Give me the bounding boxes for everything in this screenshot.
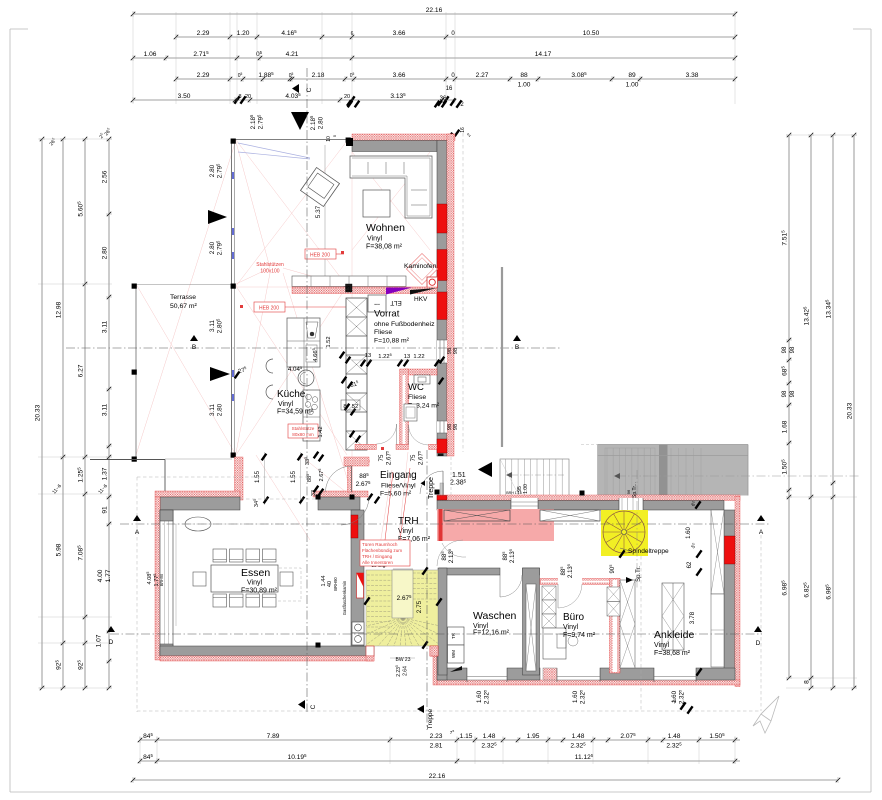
svg-text:A: A (759, 529, 764, 536)
svg-text:4.00: 4.00 (97, 569, 104, 582)
svg-text:4.21: 4.21 (286, 51, 299, 58)
svg-text:Waschen: Waschen (473, 610, 517, 622)
svg-text:5.98: 5.98 (56, 543, 63, 556)
svg-text:Kaminofen: Kaminofen (404, 263, 437, 270)
svg-text:Eingang: Eingang (380, 470, 417, 481)
svg-text:13: 13 (346, 286, 352, 292)
svg-text:2.64: 2.64 (403, 666, 409, 676)
svg-text:91: 91 (102, 506, 109, 514)
svg-text:Ankleide: Ankleide (654, 629, 694, 641)
svg-text:100x100: 100x100 (260, 269, 279, 275)
svg-text:1.15: 1.15 (460, 733, 473, 740)
svg-text:Türen Raumhoch: Türen Raumhoch (362, 542, 398, 547)
svg-text:7.89: 7.89 (267, 733, 280, 740)
svg-text:Spindeltreppe: Spindeltreppe (628, 548, 669, 555)
svg-text:2.23: 2.23 (430, 733, 443, 740)
svg-text:Fliese: Fliese (374, 329, 392, 336)
svg-text:1.52: 1.52 (326, 336, 332, 347)
svg-text:98: 98 (782, 346, 788, 353)
svg-text:Vinyl: Vinyl (367, 236, 382, 243)
svg-text:Fliese: Fliese (408, 394, 426, 401)
svg-text:2.75: 2.75 (416, 600, 423, 613)
svg-text:Stahlstütze: Stahlstütze (292, 426, 315, 431)
svg-text:B: B (515, 344, 519, 351)
svg-text:10.50: 10.50 (583, 30, 600, 37)
svg-text:96: 96 (626, 489, 631, 494)
svg-text:22.16: 22.16 (429, 773, 446, 780)
svg-text:F=5,60 m²: F=5,60 m² (380, 491, 412, 498)
svg-text:F=10,88 m²: F=10,88 m² (374, 338, 410, 345)
svg-text:1.00: 1.00 (523, 484, 529, 494)
svg-text:F=38,68 m²: F=38,68 m² (654, 650, 691, 657)
svg-text:80x80 mm: 80x80 mm (292, 432, 314, 437)
svg-text:2.80: 2.80 (318, 116, 325, 129)
svg-text:HKV: HKV (414, 296, 428, 303)
svg-text:BRH90: BRH90 (160, 574, 164, 586)
svg-text:3.11: 3.11 (102, 403, 109, 416)
svg-text:HEB 200: HEB 200 (310, 253, 330, 259)
svg-text:BRH 1.16: BRH 1.16 (506, 491, 522, 495)
svg-text:HEB 200: HEB 200 (259, 306, 279, 312)
svg-text:Treppe: Treppe (427, 708, 434, 729)
svg-text:Büro: Büro (563, 612, 585, 623)
svg-text:Flächenbündig zum: Flächenbündig zum (362, 548, 402, 553)
svg-text:Treppe: Treppe (428, 477, 435, 499)
svg-text:Wohnen: Wohnen (366, 222, 405, 234)
svg-text:3.11: 3.11 (102, 320, 109, 333)
svg-text:16: 16 (460, 127, 466, 133)
svg-text:Vorrat: Vorrat (374, 309, 400, 320)
svg-text:TR: TR (451, 632, 456, 639)
svg-text:8: 8 (343, 404, 346, 410)
svg-text:Vinyl: Vinyl (278, 401, 293, 408)
svg-text:2.81: 2.81 (430, 743, 443, 750)
svg-text:...: ... (374, 300, 380, 307)
svg-text:5.37: 5.37 (315, 205, 322, 218)
svg-text:D: D (109, 639, 114, 646)
svg-text:8: 8 (804, 680, 811, 684)
svg-text:2.18: 2.18 (312, 72, 325, 79)
svg-text:2.29: 2.29 (197, 72, 210, 79)
svg-text:89: 89 (628, 72, 636, 79)
svg-text:Gasflaschenkamin: Gasflaschenkamin (342, 580, 347, 615)
svg-text:20.33: 20.33 (847, 402, 854, 419)
svg-text:D: D (756, 640, 761, 647)
svg-text:13: 13 (365, 353, 371, 359)
svg-text:1.95: 1.95 (527, 733, 540, 740)
svg-text:TRH: TRH (398, 516, 419, 527)
svg-text:ELT: ELT (390, 299, 401, 306)
svg-text:Terrasse: Terrasse (170, 294, 196, 301)
svg-text:22.16: 22.16 (426, 7, 443, 14)
svg-text:BRH90: BRH90 (333, 577, 338, 591)
svg-text:1.42: 1.42 (318, 426, 324, 437)
svg-text:13: 13 (404, 354, 410, 360)
svg-text:B: B (192, 344, 196, 351)
svg-text:1.68: 1.68 (782, 420, 789, 433)
svg-text:2.27: 2.27 (476, 72, 489, 79)
svg-text:98: 98 (453, 424, 459, 430)
svg-text:20.33: 20.33 (35, 404, 42, 421)
svg-text:3.66: 3.66 (393, 30, 406, 37)
svg-text:1.06: 1.06 (144, 51, 157, 58)
svg-text:C: C (306, 87, 313, 92)
svg-text:F=30,89 m²: F=30,89 m² (241, 588, 278, 595)
svg-text:1.60: 1.60 (686, 527, 692, 539)
svg-text:2.29: 2.29 (197, 30, 210, 37)
svg-text:Vinyl: Vinyl (654, 642, 669, 649)
svg-text:F=38,08 m²: F=38,08 m² (366, 244, 403, 251)
svg-text:WM: WM (451, 650, 456, 658)
svg-text:12.98: 12.98 (56, 301, 63, 318)
svg-text:3.78: 3.78 (689, 611, 696, 624)
svg-text:98: 98 (790, 390, 796, 397)
svg-text:3.66: 3.66 (393, 72, 406, 79)
svg-text:Vinyl: Vinyl (247, 580, 262, 587)
svg-text:TRH / Eingang: TRH / Eingang (362, 554, 393, 559)
svg-text:Essen: Essen (241, 567, 270, 579)
svg-text:3.11: 3.11 (209, 404, 216, 416)
svg-text:1.00: 1.00 (518, 82, 531, 89)
svg-text:98: 98 (782, 390, 788, 397)
svg-text:75: 75 (410, 454, 417, 461)
svg-text:6.27: 6.27 (78, 364, 85, 377)
svg-text:14.17: 14.17 (535, 51, 552, 58)
svg-text:2.80: 2.80 (217, 403, 224, 416)
svg-text:Fliese/Vinyl: Fliese/Vinyl (381, 483, 416, 490)
svg-text:C: C (310, 704, 317, 709)
svg-text:Vinyl: Vinyl (563, 624, 578, 631)
svg-text:1.37: 1.37 (102, 467, 109, 480)
svg-text:3.50: 3.50 (178, 93, 191, 100)
svg-text:3.38: 3.38 (686, 72, 699, 79)
svg-text:2.80: 2.80 (102, 246, 109, 259)
svg-text:ohne Fußbodenheiz: ohne Fußbodenheiz (374, 321, 435, 328)
svg-text:16: 16 (446, 86, 453, 92)
svg-text:1.20: 1.20 (237, 30, 250, 37)
svg-text:20: 20 (344, 94, 350, 100)
svg-text:F=12,16 m²: F=12,16 m² (473, 630, 510, 637)
svg-text:F=9,74 m²: F=9,74 m² (563, 632, 596, 639)
svg-text:88: 88 (520, 72, 528, 79)
svg-text:1.55: 1.55 (290, 470, 297, 483)
svg-text:62: 62 (687, 561, 693, 568)
svg-text:75: 75 (378, 454, 385, 461)
svg-text:1.00: 1.00 (626, 82, 639, 89)
svg-text:1.22: 1.22 (413, 354, 424, 360)
svg-text:2.56: 2.56 (102, 170, 109, 183)
svg-text:Vinyl: Vinyl (398, 528, 413, 535)
svg-text:50,67 m²: 50,67 m² (170, 303, 198, 310)
svg-text:1.77: 1.77 (105, 569, 112, 582)
svg-text:1.55: 1.55 (254, 470, 261, 483)
svg-text:1.48: 1.48 (483, 733, 496, 740)
svg-text:Stahlstützen: Stahlstützen (256, 262, 284, 268)
svg-text:1.07: 1.07 (96, 634, 103, 647)
svg-text:Alle Innentüren: Alle Innentüren (362, 560, 393, 565)
svg-text:52: 52 (352, 404, 358, 410)
svg-text:98: 98 (790, 346, 796, 353)
svg-text:A: A (135, 529, 140, 536)
svg-text:Küche: Küche (277, 389, 306, 400)
svg-text:1.48: 1.48 (668, 733, 681, 740)
svg-text:F=34,59 m²: F=34,59 m² (277, 409, 314, 416)
svg-text:1.48: 1.48 (572, 733, 585, 740)
svg-text:98: 98 (453, 348, 459, 354)
